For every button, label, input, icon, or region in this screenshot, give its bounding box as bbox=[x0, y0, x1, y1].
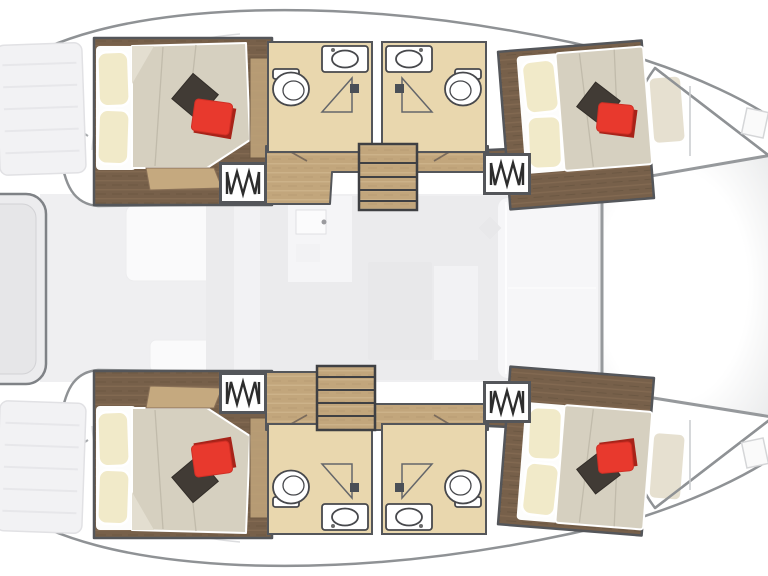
port-staircase bbox=[359, 144, 417, 210]
starboard-hull bbox=[0, 367, 768, 566]
port-aft-head bbox=[268, 42, 372, 152]
companionway-aft-port bbox=[221, 164, 266, 203]
bed-step bbox=[146, 168, 222, 190]
stern-platform bbox=[0, 43, 86, 176]
midship-deck bbox=[0, 194, 602, 384]
companionway-forward-port bbox=[485, 155, 530, 194]
starboard-staircase bbox=[317, 366, 375, 430]
saloon-seat bbox=[434, 266, 478, 360]
galley-faucet-icon bbox=[322, 220, 327, 225]
cockpit-table-top bbox=[0, 204, 36, 374]
galley-block bbox=[288, 196, 352, 282]
pillow-icon bbox=[97, 51, 130, 106]
red-pillow-icon bbox=[191, 99, 233, 136]
pillow-icon bbox=[97, 109, 130, 164]
stairs bbox=[317, 366, 375, 430]
red-pillow-icon bbox=[596, 102, 634, 134]
cockpit-bench bbox=[126, 205, 214, 281]
port-forward-head bbox=[382, 42, 486, 152]
bow-locker bbox=[742, 108, 768, 138]
galley-counter bbox=[234, 200, 260, 372]
galley-stove bbox=[296, 244, 320, 262]
floor-plan-canvas bbox=[0, 0, 768, 576]
pillow-icon bbox=[521, 59, 560, 114]
saloon-table bbox=[368, 262, 432, 360]
catamaran-floor-plan bbox=[0, 0, 768, 576]
pillow-icon bbox=[527, 116, 562, 169]
